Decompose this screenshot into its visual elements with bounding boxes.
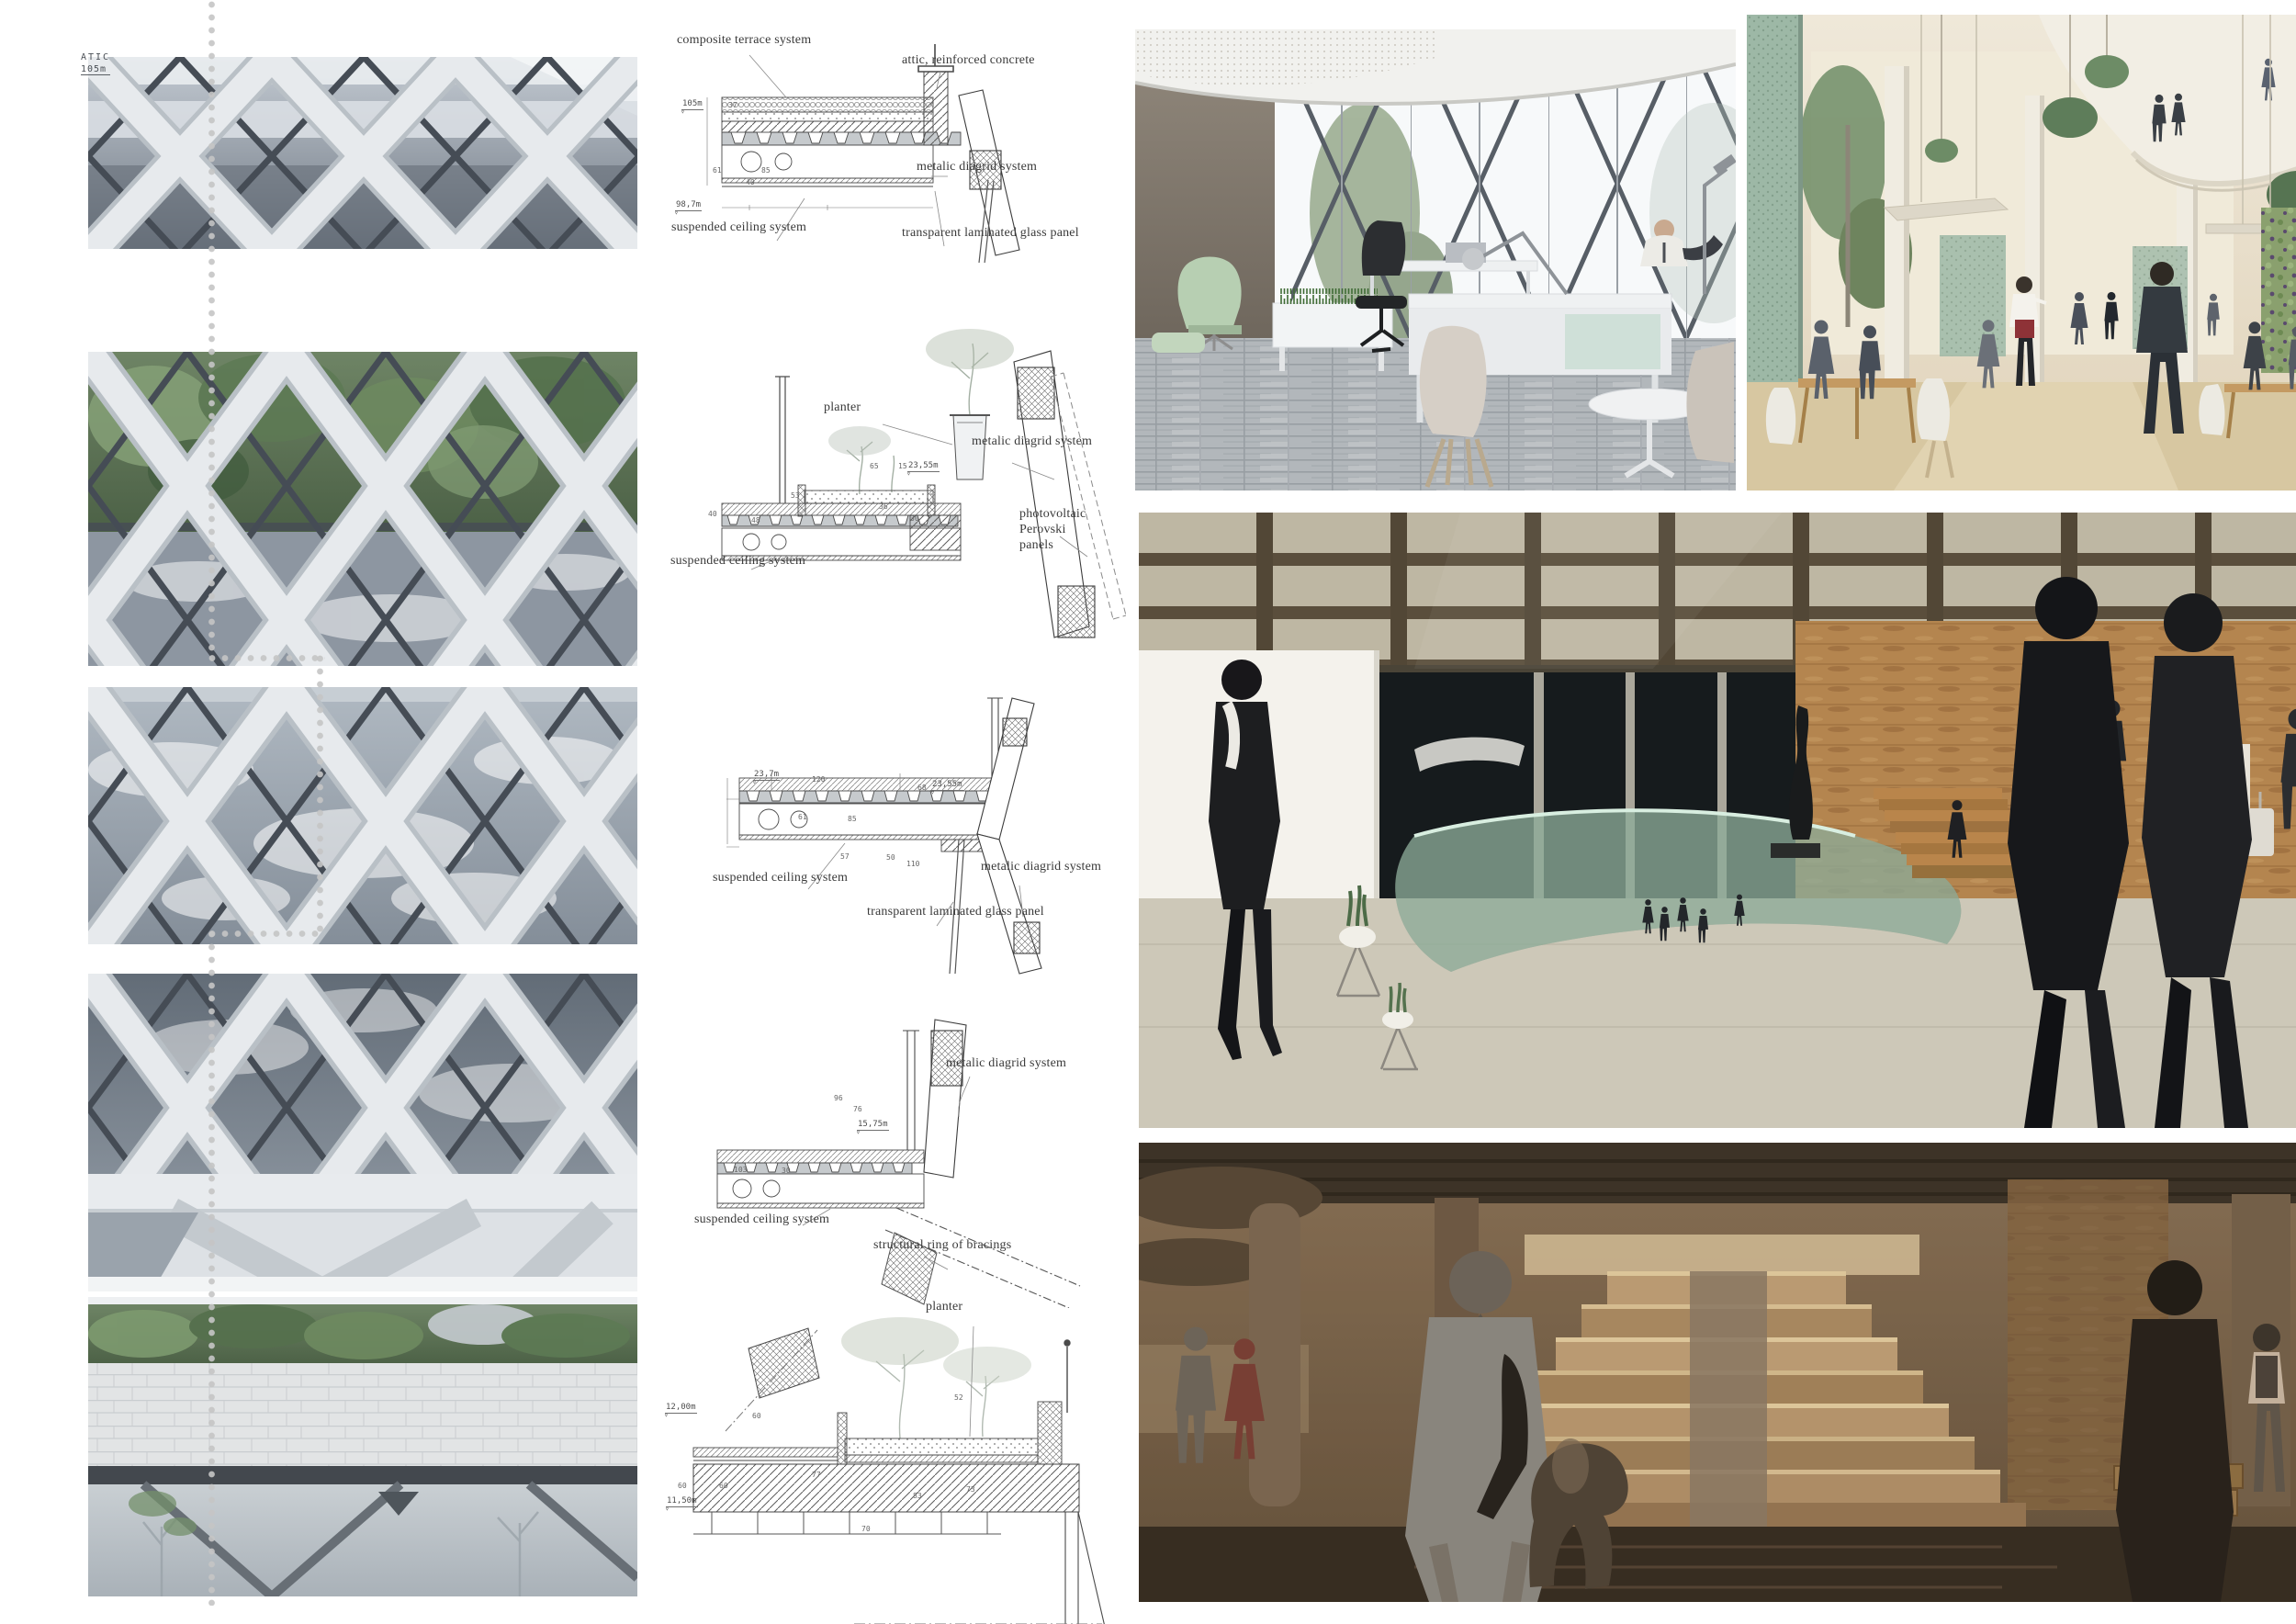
- pv-panel: [748, 1328, 819, 1398]
- dim: 68: [917, 784, 927, 792]
- detail-drawing-floor-node: [716, 691, 1130, 977]
- hangers: [693, 1512, 1001, 1534]
- label-diagrid-3: metalic diagrid system: [981, 860, 1101, 875]
- label-ring-4: structural ring of bracings: [873, 1238, 1011, 1254]
- facade-render-sky-reflection: [88, 687, 637, 944]
- dim: 77: [812, 1471, 821, 1479]
- dim: 83: [913, 1492, 922, 1500]
- label-planter-5: planter: [926, 1300, 962, 1315]
- column-below: [1065, 1512, 1108, 1624]
- render-atrium-cafeteria: [1747, 15, 2296, 491]
- diagrid-members: [977, 698, 1041, 974]
- label-ceiling-1: suspended ceiling system: [671, 220, 806, 236]
- label-pv-2: photovoltaic Perovski panels: [1019, 507, 1098, 553]
- dim: 40: [746, 178, 755, 186]
- dim: 73: [966, 1485, 975, 1494]
- section-connector-segment: [208, 654, 325, 662]
- label-attic: attic, reinforced concrete: [902, 53, 1035, 69]
- dim: 103: [734, 1166, 747, 1174]
- dim: 76: [853, 1105, 862, 1113]
- label-diagrid-4: metalic diagrid system: [946, 1056, 1066, 1072]
- marker-name: ATIC: [81, 52, 110, 62]
- level-105m: 105m: [681, 99, 703, 110]
- green-perforated-screen: [1747, 15, 1798, 417]
- floor: [1139, 898, 2296, 1128]
- label-glass-1: transparent laminated glass panel: [902, 226, 1079, 242]
- green-lattice-screen: [1940, 235, 2006, 356]
- section-connector-segment: [316, 654, 324, 937]
- dim: 60: [752, 1412, 761, 1420]
- level-23-55m-d2: 23,55m: [907, 461, 940, 472]
- dim: 60: [678, 1482, 687, 1490]
- label-diagrid-1: metalic diagrid system: [917, 160, 1037, 175]
- pipe: [903, 1031, 919, 1150]
- dim: 60: [719, 1482, 728, 1490]
- dim: 30: [782, 1167, 791, 1175]
- dim: 85: [848, 815, 857, 823]
- level-12-00m: 12,00m: [665, 1403, 697, 1414]
- marker-level: 105m: [81, 64, 110, 75]
- slab-assembly: [717, 1150, 924, 1208]
- render-lobby: [1139, 513, 2296, 1128]
- dim: 61: [713, 166, 722, 175]
- label-ceiling-3: suspended ceiling system: [713, 871, 848, 886]
- trees: [841, 1317, 1031, 1438]
- render-office-interior: [1135, 29, 1736, 491]
- dim: 52: [954, 1393, 963, 1402]
- dim: 15: [898, 462, 907, 470]
- dim: 48: [751, 516, 760, 524]
- dim: 85: [761, 166, 771, 175]
- render-basement-steps: [1139, 1143, 2296, 1602]
- level-23-7m: 23,7m: [753, 770, 780, 781]
- level-98-7m: 98,7m: [675, 200, 702, 211]
- dim: 61: [798, 813, 807, 821]
- label-glass-3: transparent laminated glass panel: [867, 905, 1044, 920]
- dim: 37: [728, 101, 737, 109]
- level-11-50m: 11,50m: [666, 1496, 698, 1507]
- dim: 96: [834, 1094, 843, 1102]
- presentation-board: ATIC 105m: [0, 0, 2296, 1624]
- dim: 36: [879, 502, 888, 511]
- dim: 110: [906, 860, 919, 868]
- section-connector-segment: [208, 0, 216, 656]
- label-ceiling-4: suspended ceiling system: [694, 1212, 829, 1228]
- facade-render-terrace-greenery: [88, 352, 637, 666]
- section-connector-segment: [208, 930, 216, 1606]
- dim: 65: [870, 462, 879, 470]
- dim: 40: [708, 510, 717, 518]
- dim: 70: [861, 1525, 871, 1533]
- label-diagrid-2: metalic diagrid system: [972, 434, 1092, 450]
- dim: 120: [812, 775, 825, 784]
- vent-pipe: [775, 377, 790, 503]
- ground-slab: [693, 1464, 1079, 1512]
- facade-render-attic: [88, 57, 637, 249]
- chair-right-edge: [1686, 342, 1734, 463]
- level-15-75m: 15,75m: [857, 1120, 889, 1131]
- level-23-55m-d3: 23,55m: [931, 780, 963, 791]
- railing: [1064, 1340, 1070, 1413]
- facade-render-base-node: [88, 974, 637, 1291]
- diagrid-member: [924, 1020, 966, 1178]
- facade-level-marker: ATIC 105m: [81, 52, 110, 75]
- planter-zone: [693, 1402, 1062, 1464]
- label-ceiling-2: suspended ceiling system: [670, 554, 805, 570]
- label-composite-terrace: composite terrace system: [677, 33, 811, 49]
- facade-render-street-wall: [88, 1297, 637, 1596]
- section-connector-segment: [208, 930, 325, 938]
- dim: 53: [791, 491, 800, 500]
- dim: 30: [910, 514, 919, 523]
- detail-drawing-planter-pv: [694, 323, 1126, 674]
- label-planter-2: planter: [824, 400, 861, 416]
- diagrid-member: [1014, 351, 1095, 637]
- frosted-green-panel: [1565, 314, 1660, 369]
- dim: 50: [886, 853, 895, 862]
- detail-drawing-ground-planter: [670, 1293, 1113, 1624]
- dim: 57: [840, 852, 850, 861]
